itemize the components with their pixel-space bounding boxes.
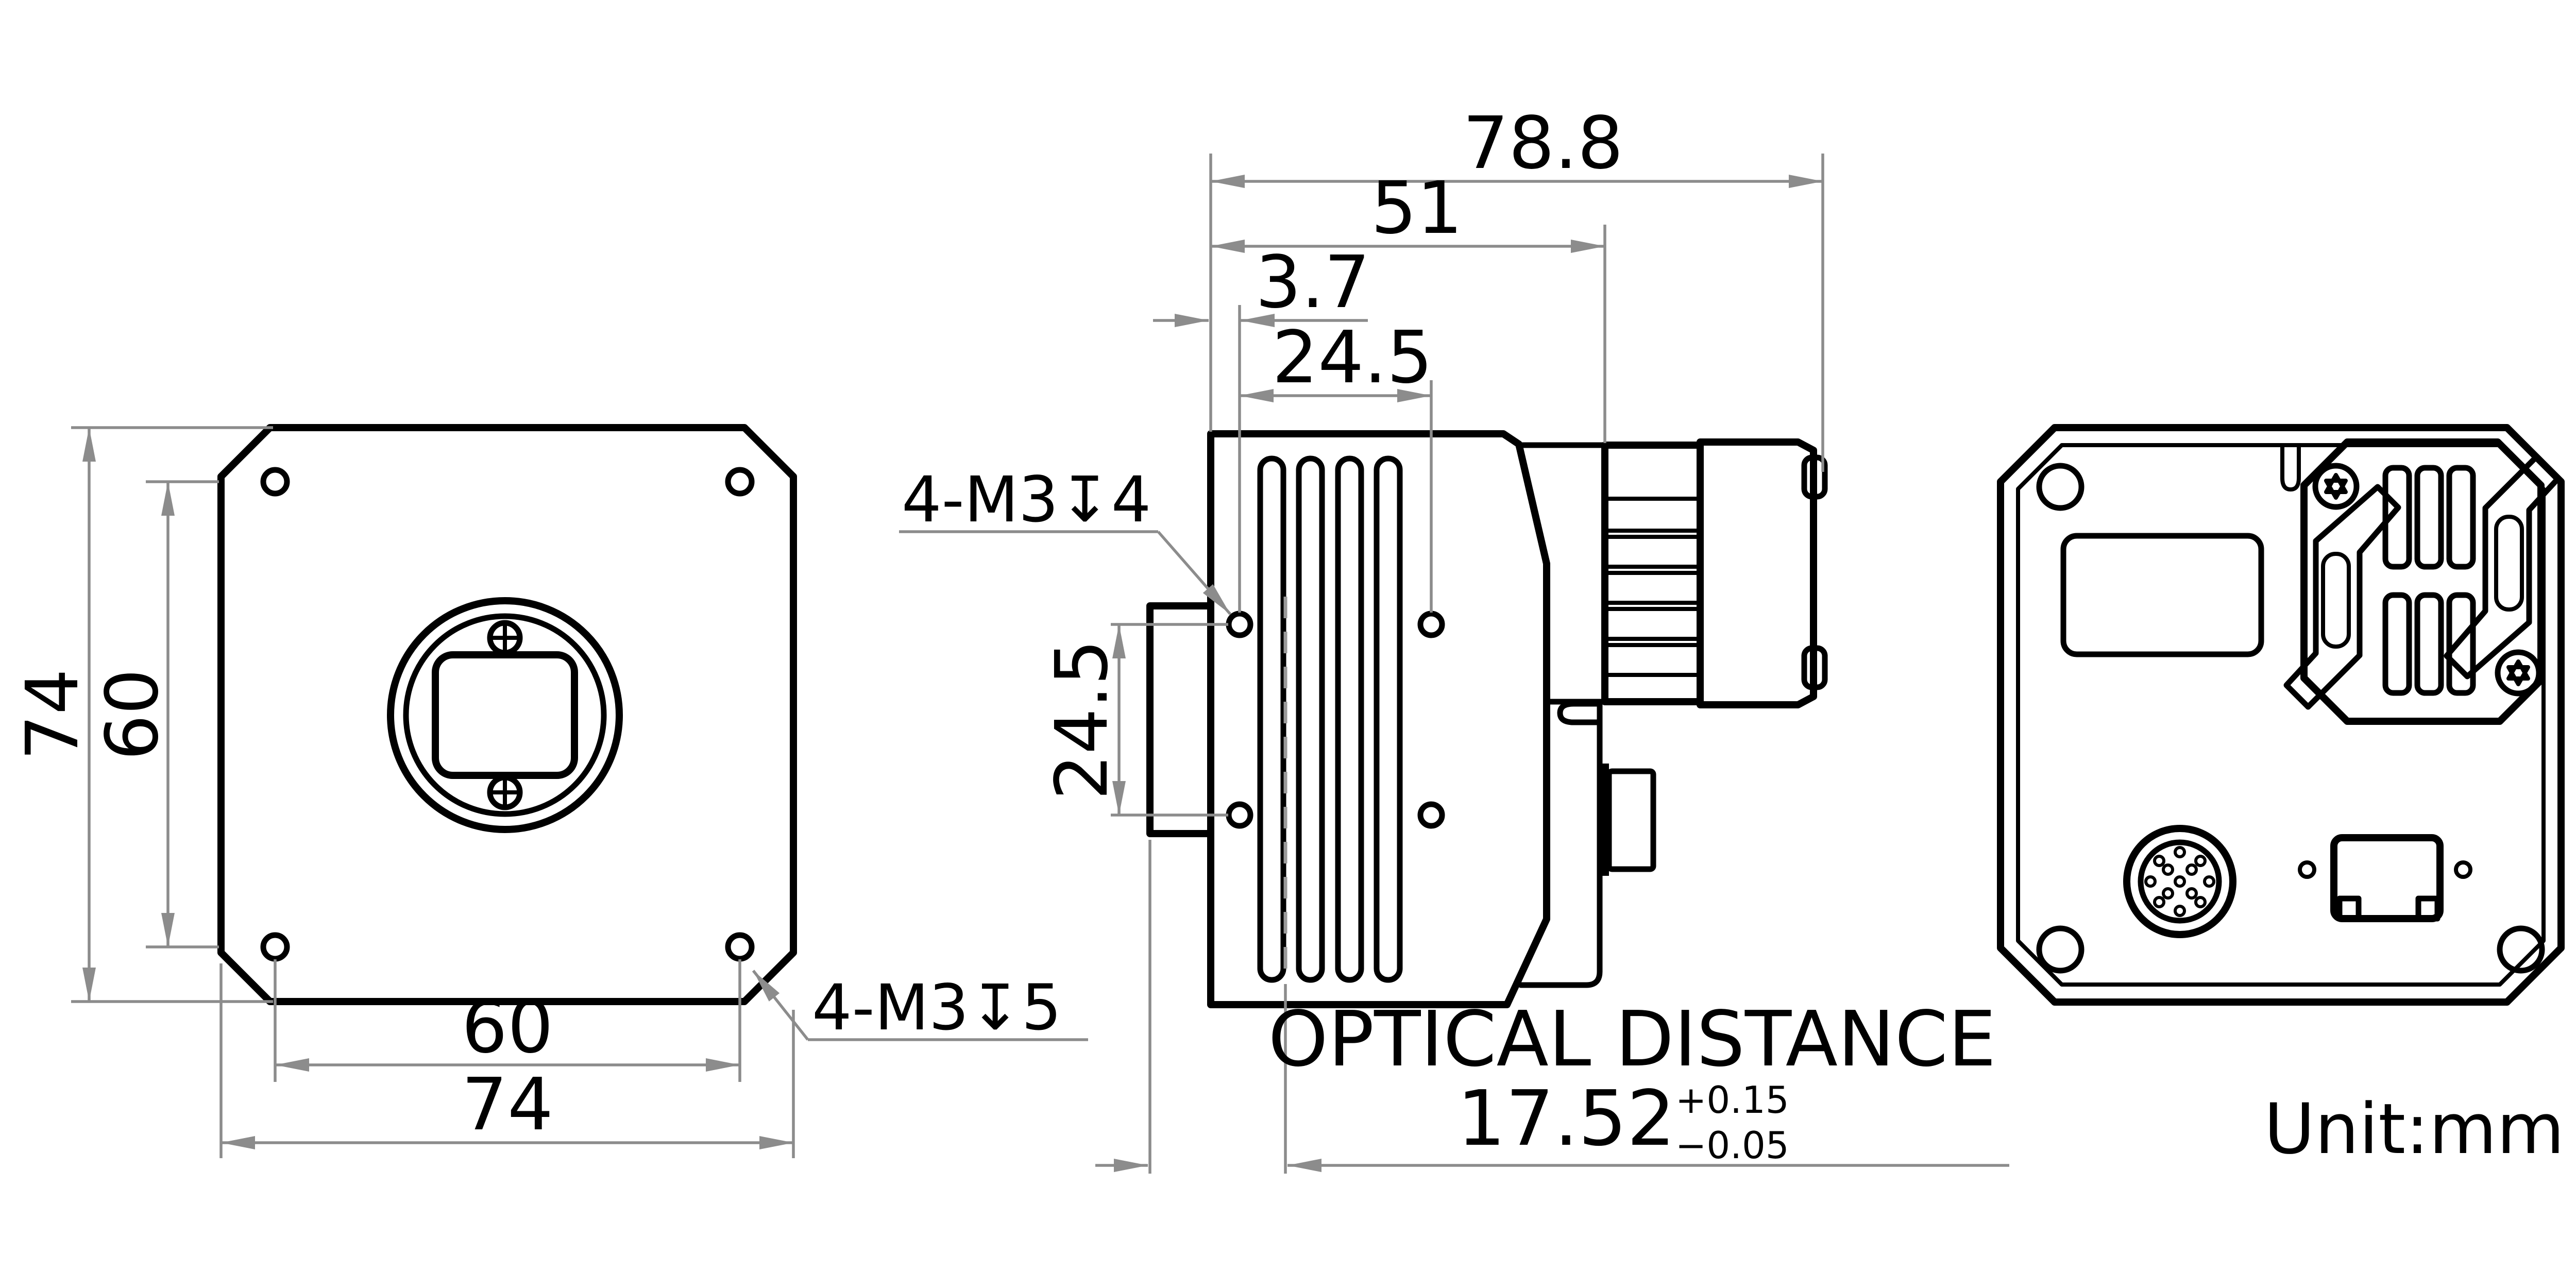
back-heatsink-module xyxy=(2286,442,2558,721)
rear-cover xyxy=(1700,442,1814,705)
back-view xyxy=(2001,428,2561,1002)
ethernet-port xyxy=(2334,838,2440,919)
dim-front-hole-pitch-height: 60 xyxy=(91,669,175,760)
side-dimensions: 78.8 51 3.7 24.5 24.5 4-M3↧4 xyxy=(899,101,2009,1174)
back-corner-hole-bottom-left xyxy=(2039,928,2081,971)
connector-pins xyxy=(2146,848,2214,916)
dim-side-body-length: 51 xyxy=(1371,166,1463,250)
torx-screw-bottom-right xyxy=(2498,652,2539,693)
optical-distance-tolerance-upper: +0.15 xyxy=(1675,1078,1789,1122)
dim-front-hole-pitch-width: 60 xyxy=(462,986,553,1070)
lens-mount-boss xyxy=(1150,606,1211,834)
side-view: 78.8 51 3.7 24.5 24.5 4-M3↧4 xyxy=(899,101,2009,1174)
cable-tab xyxy=(1560,704,1600,722)
back-top-notch xyxy=(2282,446,2299,489)
front-mount-hole-bottom-left xyxy=(263,935,287,959)
front-thread-callout-text: 4-M3↧5 xyxy=(812,971,1061,1044)
optical-distance-value: 17.52 xyxy=(1457,1074,1675,1163)
sensor-aperture xyxy=(435,655,574,775)
lens-screw-bottom xyxy=(490,777,520,807)
unit-label: Unit:mm xyxy=(2264,1089,2564,1170)
dim-front-outer-height: 74 xyxy=(11,669,95,760)
front-view: 74 60 60 74 4-M3↧5 xyxy=(11,428,1088,1158)
front-mount-hole-bottom-right xyxy=(728,935,752,959)
heatsink-fins xyxy=(1608,499,1697,675)
front-mount-hole-top-right xyxy=(728,470,752,494)
io-connector-plug xyxy=(1609,771,1653,869)
side-mount-hole-rear-top xyxy=(1420,614,1442,635)
back-outline-inner xyxy=(2018,445,2544,985)
front-outline xyxy=(221,428,793,1002)
lens-mount xyxy=(391,601,619,829)
back-heatsink-slats xyxy=(2385,468,2473,693)
side-thread-callout: 4-M3↧4 xyxy=(899,463,1230,614)
camera-dimension-drawing: 74 60 60 74 4-M3↧5 xyxy=(0,0,2576,1288)
side-mount-hole-front-top xyxy=(1229,614,1250,635)
side-mount-hole-front-bottom xyxy=(1229,804,1250,826)
back-outline-outer xyxy=(2001,428,2561,1002)
torx-screw-top-left xyxy=(2315,466,2357,507)
rear-heatsink-module xyxy=(1520,442,1825,985)
ethernet-screw-hole-right xyxy=(2456,862,2470,877)
dim-front-outer-width: 74 xyxy=(462,1063,553,1147)
dim-side-hole-offset: 3.7 xyxy=(1256,241,1370,325)
side-thread-callout-text: 4-M3↧4 xyxy=(902,463,1151,536)
drawing-page: 74 60 60 74 4-M3↧5 xyxy=(0,0,2576,1288)
power-io-round-connector xyxy=(2127,828,2233,935)
dim-side-total-length: 78.8 xyxy=(1463,101,1623,185)
front-thread-callout: 4-M3↧5 xyxy=(753,971,1088,1044)
side-mount-hole-rear-bottom xyxy=(1420,804,1442,826)
dim-side-hole-pitch-vertical: 24.5 xyxy=(1040,639,1124,800)
lens-screw-top xyxy=(490,623,520,653)
optical-distance-label: OPTICAL DISTANCE xyxy=(1268,995,1996,1083)
back-corner-hole-top-left xyxy=(2039,466,2081,508)
front-dimensions: 74 60 60 74 4-M3↧5 xyxy=(11,428,1088,1158)
back-label-recess xyxy=(2063,536,2261,654)
optical-distance-tolerance-lower: −0.05 xyxy=(1675,1124,1789,1167)
side-cooling-slots xyxy=(1260,459,1400,980)
dim-side-hole-pitch-horizontal: 24.5 xyxy=(1272,316,1433,400)
front-mount-hole-top-left xyxy=(263,470,287,494)
ethernet-screw-hole-left xyxy=(2300,862,2314,877)
